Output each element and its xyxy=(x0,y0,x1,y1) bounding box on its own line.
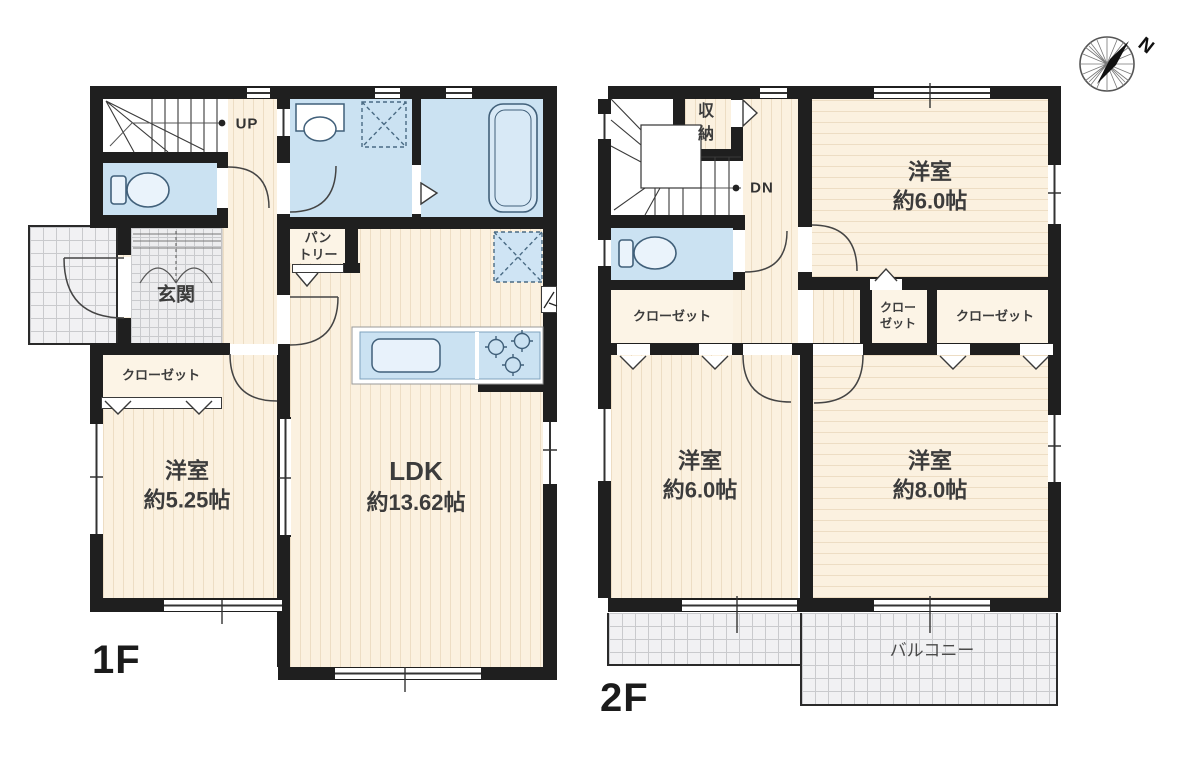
floor1-label: 1F xyxy=(92,638,141,683)
stairs-down-label: DN xyxy=(750,178,774,198)
closet-mid-label-2f: クロー ゼット xyxy=(880,300,916,331)
kitchen-counter-icon xyxy=(352,327,543,384)
entrance-label: 玄関 xyxy=(157,284,195,309)
toilet-icon xyxy=(619,237,676,269)
western-room-1f-label: 洋室 約5.25帖 xyxy=(144,457,231,514)
closet-left-label-2f: クローゼット xyxy=(633,309,711,326)
kitchen-sink-icon xyxy=(372,339,440,372)
storage-label: 収 納 xyxy=(698,100,714,146)
folding-door-markers xyxy=(105,100,1049,414)
stairs-2f-icon xyxy=(611,99,741,215)
closet-right-label-2f: クローゼット xyxy=(956,309,1034,326)
washing-machine-icon xyxy=(362,102,406,147)
door-arcs-2f xyxy=(743,225,863,403)
toilet-icon xyxy=(111,173,169,207)
closet-label-1f: クローゼット xyxy=(122,368,200,385)
balcony-label: バルコニー xyxy=(890,640,975,662)
compass-icon: N xyxy=(1080,33,1158,91)
compass-north-label: N xyxy=(1134,33,1158,58)
bathtub-icon xyxy=(489,104,537,212)
stairs-1f-icon xyxy=(106,99,225,152)
bedroom-ne-label: 洋室 約6.0帖 xyxy=(893,158,968,215)
stairs-up-label: UP xyxy=(236,114,259,134)
pantry-label: パン トリー xyxy=(298,230,337,264)
bedroom-se-label: 洋室 約8.0帖 xyxy=(893,447,968,504)
ldk-label: LDK 約13.62帖 xyxy=(366,455,465,517)
floor-plan-canvas: N UP 玄関 クローゼット パン トリー 洋室 約5.25帖 LDK 約13.… xyxy=(0,0,1181,764)
refrigerator-icon xyxy=(494,232,542,282)
door-arcs-1f xyxy=(64,166,338,401)
wall-equipment-icon xyxy=(544,292,557,308)
washbasin-icon xyxy=(296,104,344,141)
bedroom-sw-label: 洋室 約6.0帖 xyxy=(663,447,738,504)
floor2-label: 2F xyxy=(600,676,649,721)
